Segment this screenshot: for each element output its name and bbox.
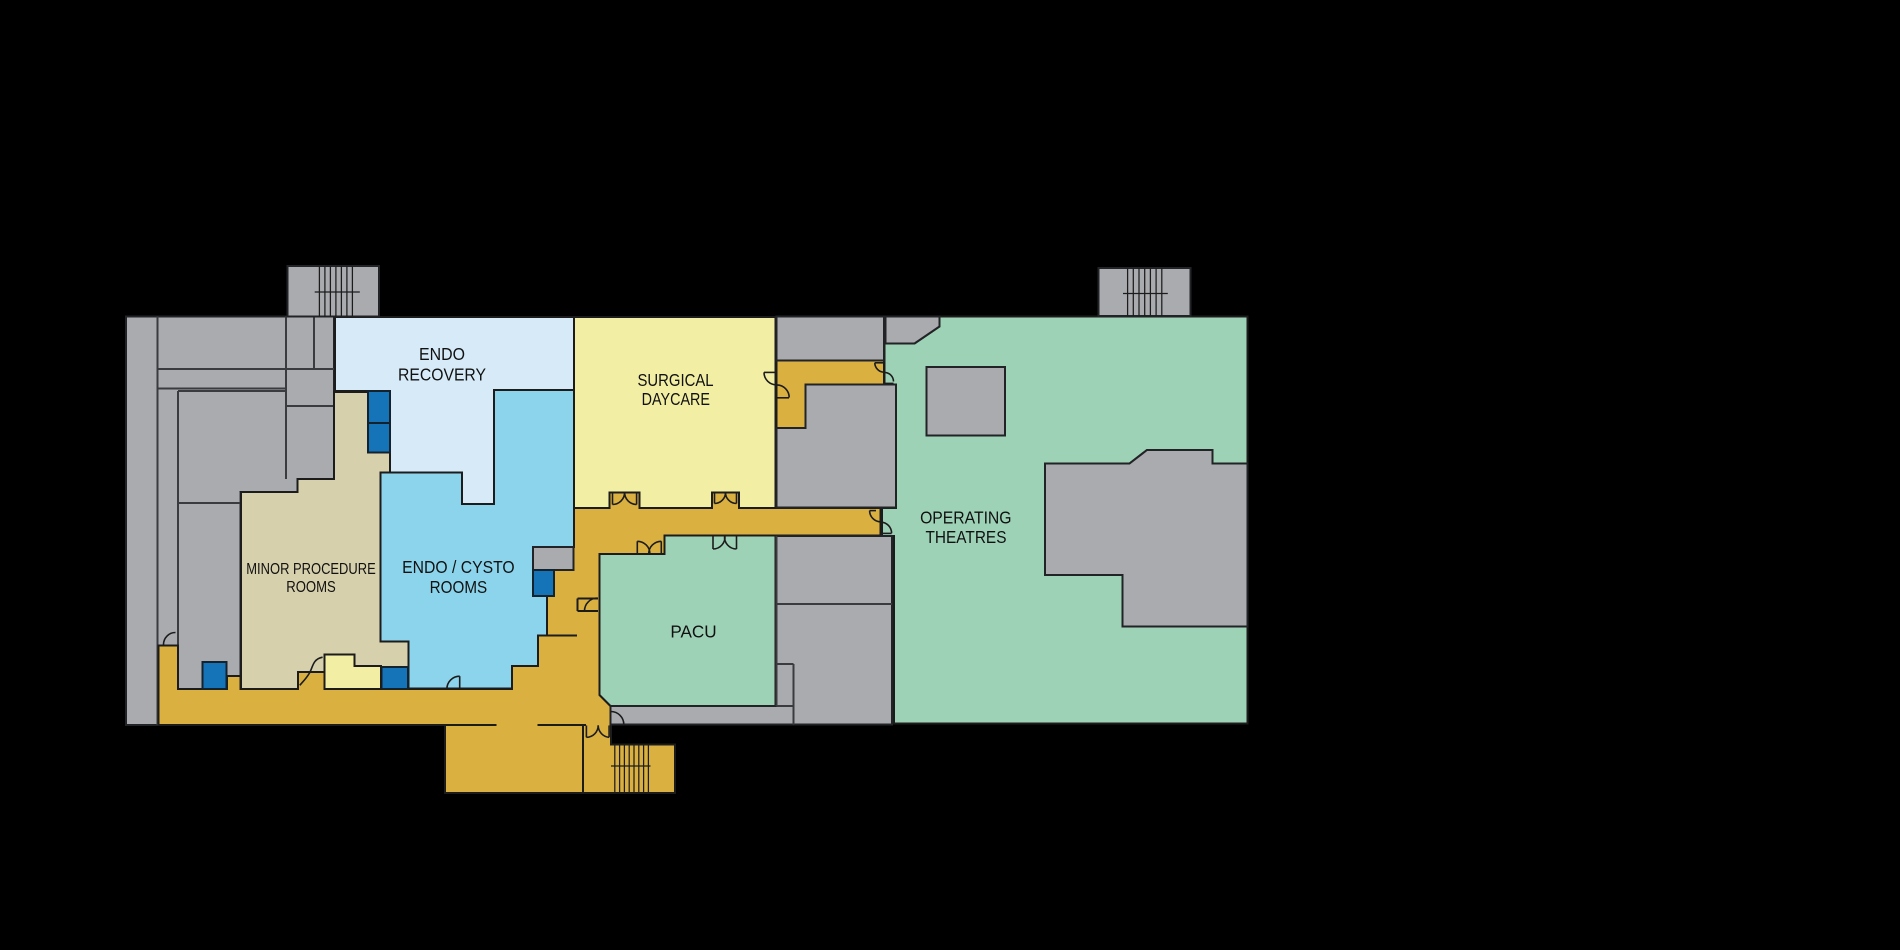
- svg-text:DAYCARE: DAYCARE: [642, 391, 710, 410]
- svg-text:ENDO: ENDO: [419, 344, 465, 364]
- svg-text:ROOMS: ROOMS: [430, 578, 488, 597]
- svg-text:MINOR PROCEDURE: MINOR PROCEDURE: [246, 561, 376, 579]
- svg-text:ENDO / CYSTO: ENDO / CYSTO: [402, 557, 515, 577]
- svg-text:OPERATING: OPERATING: [920, 508, 1011, 528]
- svg-text:ROOMS: ROOMS: [286, 579, 336, 596]
- svg-text:PACU: PACU: [670, 621, 716, 641]
- svg-text:RECOVERY: RECOVERY: [398, 365, 486, 385]
- svg-text:SURGICAL: SURGICAL: [637, 371, 713, 390]
- svg-text:THEATRES: THEATRES: [926, 528, 1007, 547]
